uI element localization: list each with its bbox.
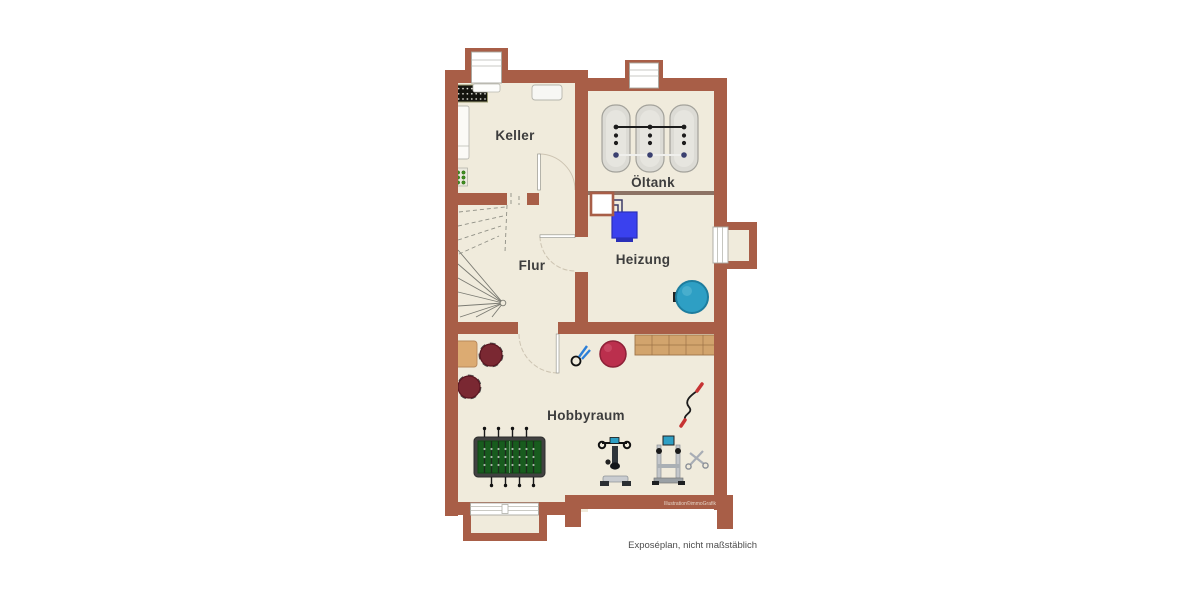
sideboard-bench-icon xyxy=(635,335,715,355)
heizung-window xyxy=(713,227,728,263)
keller-door-leaf xyxy=(538,154,541,190)
heizung-door-leaf xyxy=(540,235,575,238)
boiler-icon xyxy=(612,212,637,242)
oil-tanks-icon xyxy=(602,105,698,172)
watermark-text: Illustration©immoGrafik xyxy=(664,500,717,507)
room-label-hobbyraum: Hobbyraum xyxy=(547,408,625,423)
cabinet-icon xyxy=(532,85,562,100)
room-label-flur: Flur xyxy=(519,258,546,273)
footer-note: Exposéplan, nicht maßstäblich xyxy=(628,540,757,551)
side-table-icon xyxy=(455,341,477,367)
room-label-keller: Keller xyxy=(495,128,535,143)
oeltank-window xyxy=(630,63,659,88)
room-label-heizung: Heizung xyxy=(616,252,671,267)
keller-window xyxy=(472,52,502,92)
floor-plan: Keller Öltank Flur Heizung Hobbyraum Ill… xyxy=(0,0,1200,600)
gym-ball-icon xyxy=(600,341,626,367)
hobbyraum-door-leaf xyxy=(556,334,559,373)
room-label-oeltank: Öltank xyxy=(631,175,675,190)
chimney-flue-icon xyxy=(591,193,613,215)
hobbyraum-window xyxy=(471,503,539,515)
